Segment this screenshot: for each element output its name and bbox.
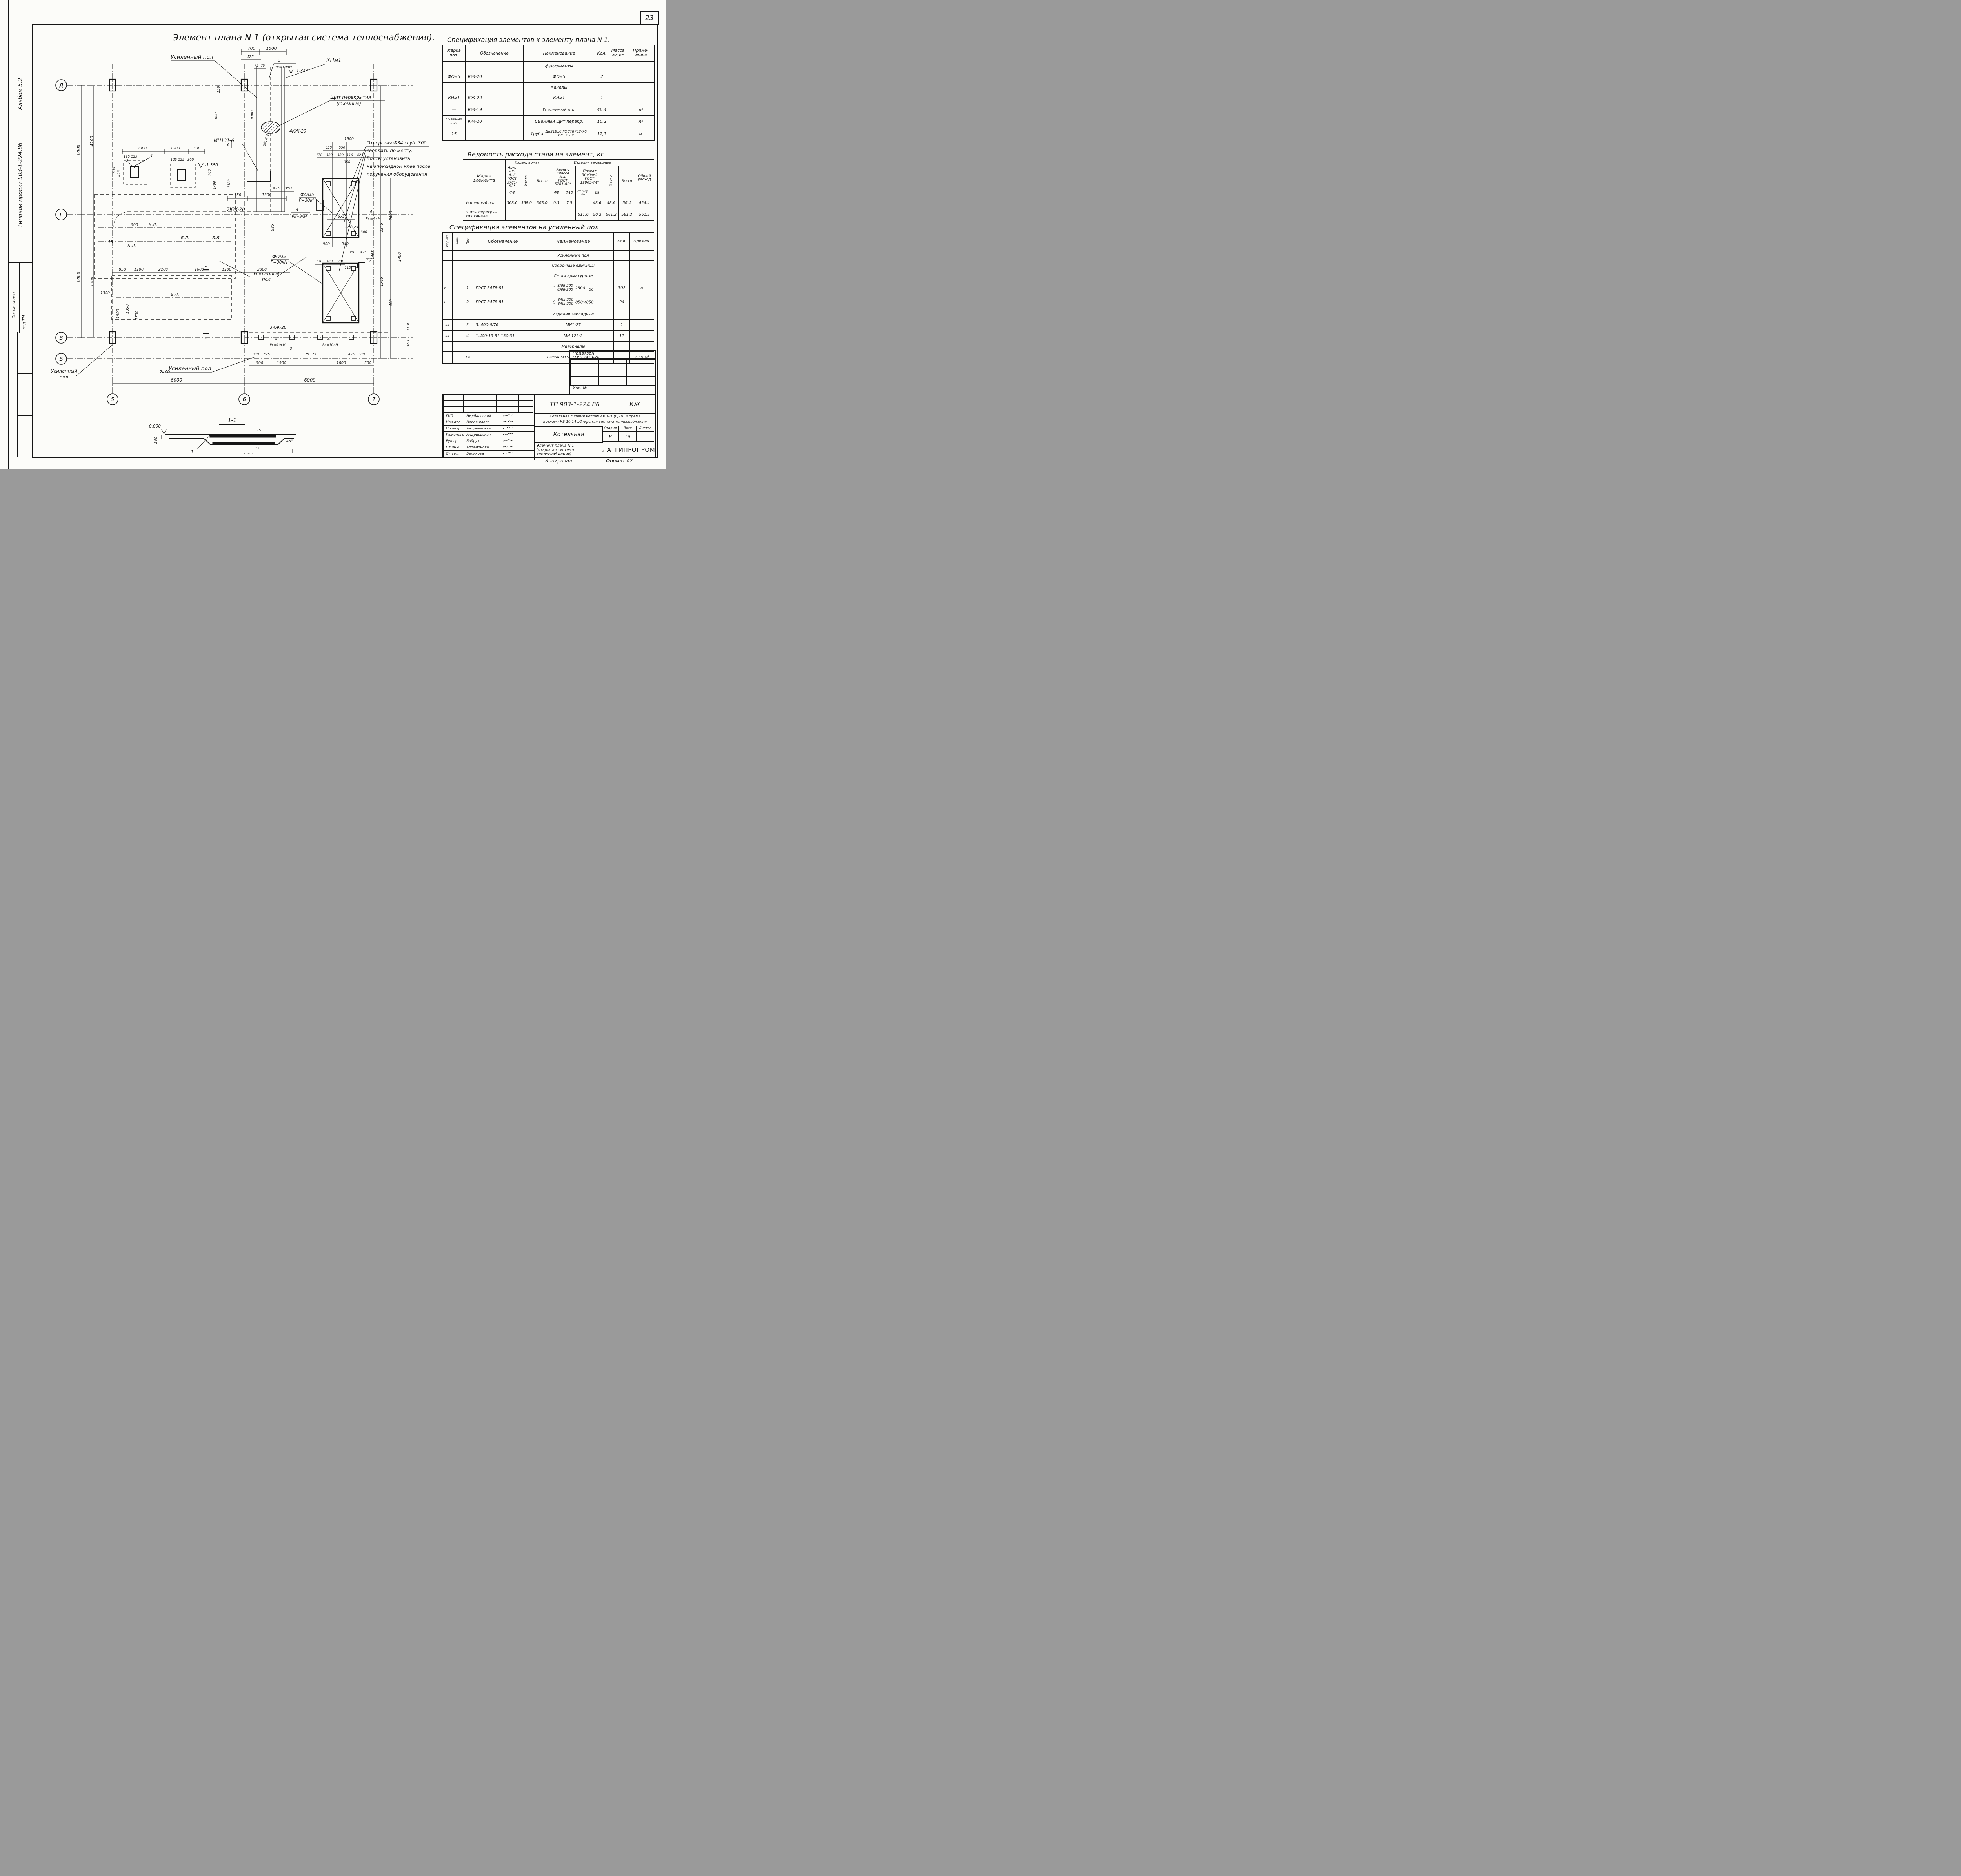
- dim: 1700: [90, 277, 95, 286]
- axis-label-b: Б: [59, 356, 63, 362]
- dim: 6000: [76, 271, 81, 282]
- section-name: Сборочные единицы: [533, 261, 614, 271]
- dim: 500: [131, 223, 138, 227]
- dim: 1465: [371, 250, 375, 260]
- col-header: Арм. кл. А-III ГОСТ 5781-82*: [505, 166, 519, 189]
- attachment-box: Привязан Инв. №: [569, 350, 656, 395]
- organization-cell: ЛАТГИПРОПРОМ: [602, 442, 656, 458]
- table-row: Марка поз. Обозначение Наименование Кол.…: [443, 45, 655, 62]
- pos-number: 4: [275, 337, 277, 342]
- table-row: Съемный щитКЖ-20Съемный щит перекр.10,2м…: [443, 116, 655, 127]
- sheet-value: 19: [619, 431, 636, 442]
- pos-number: 4: [150, 154, 153, 158]
- dim: 380: [326, 153, 333, 157]
- dim: 700: [247, 46, 255, 51]
- table-row: Б.Ч. 2 ГОСТ 8478-81 С 8АIII-2008АIII-200…: [443, 295, 654, 309]
- dim: 125: [310, 353, 316, 357]
- label-reinforced-floor-left1: Усиленный: [51, 368, 77, 374]
- table-row: Усиленный пол 368,0368,0 368,00,3 7,5 48…: [463, 197, 654, 209]
- attachment-label: Привязан: [570, 351, 655, 359]
- col-header: Марка поз.: [443, 45, 466, 62]
- dim: 550: [326, 146, 332, 150]
- dim: 1900: [344, 137, 354, 141]
- dim: 1300: [100, 291, 110, 295]
- col-header: Прокат ВСт3кп2 ГОСТ 19903-74*: [576, 166, 604, 189]
- dim: 1100: [406, 322, 411, 331]
- label-load-10kn: Рк=10кН: [322, 343, 338, 347]
- dim: 75: [255, 64, 259, 68]
- dim: 125: [171, 158, 177, 162]
- dim: 585: [271, 224, 275, 231]
- label-reinforced-floor-top: Усиленный пол: [171, 54, 213, 60]
- col-header: Формат: [446, 235, 449, 247]
- dim: 380: [326, 260, 333, 264]
- note-line5: получения оборудования: [367, 171, 427, 177]
- table-row: А4 4 1.400-15 81.130-31 МН 122-2 11: [443, 331, 654, 342]
- col-header: Кол.: [614, 233, 630, 251]
- dim: 300: [253, 353, 259, 357]
- dim: 380: [337, 153, 344, 157]
- pos-number: 4: [327, 337, 330, 342]
- col-header: Общий расход: [635, 160, 654, 197]
- dim: 4200: [90, 136, 95, 146]
- dim: 600: [214, 112, 218, 119]
- signature: [497, 438, 519, 444]
- dim: 300: [154, 437, 158, 444]
- dim: 1700: [135, 311, 139, 320]
- copied-label: Копировал: [545, 458, 572, 464]
- axis-label-7: 7: [372, 397, 376, 403]
- dim: 350: [285, 186, 292, 191]
- section-elevation: 0.000: [149, 424, 161, 429]
- elevation-1380: -1.380: [205, 163, 218, 167]
- signature: [497, 426, 519, 432]
- plan-drawing: Д Г В Б 5 6 7 700 1500 425 75 75 150 600…: [35, 43, 439, 454]
- signature: [497, 413, 519, 419]
- dim: 6000: [76, 144, 81, 155]
- label-t2: Т2: [366, 258, 371, 263]
- dim: 350: [344, 160, 350, 164]
- col-header: δ8: [591, 189, 604, 197]
- dim: 2350: [243, 452, 253, 454]
- dim: 1400: [213, 181, 217, 189]
- table-row: А4 3 З. 400-6/76 МИ1-27 1: [443, 320, 654, 331]
- dim: 15: [257, 429, 261, 433]
- elevation-1344: -1.344: [295, 69, 308, 73]
- col-header: Примеч.: [630, 233, 654, 251]
- dim: 900: [323, 242, 330, 246]
- table-row: Ст.инж.Артамонова: [444, 444, 534, 451]
- sidebar-inventory-box: [17, 332, 33, 457]
- label-load-9kn: Рк=9кН: [366, 217, 380, 221]
- dim: 1300: [262, 193, 271, 197]
- dim: 1350: [126, 304, 130, 314]
- dim: 6000: [171, 377, 182, 383]
- dim: 1200: [171, 146, 180, 151]
- section-mark-1: 1: [205, 338, 207, 342]
- axis-label-5: 5: [111, 397, 115, 403]
- dim: 125: [131, 155, 137, 159]
- sheets-header: Листов: [636, 426, 654, 431]
- dim: 500: [364, 361, 371, 365]
- dim: 125: [178, 158, 184, 162]
- building-cell: Котельная: [534, 426, 603, 443]
- table-row: 15 Труба Дн219x6 ГОСТ8732-70ВСт3сп2 12,1…: [443, 127, 655, 141]
- table-row: Формат Зона Поз. Обозначение Наименовани…: [443, 233, 654, 251]
- table-row: ГИПНидбальский: [444, 413, 534, 419]
- dim: 425: [264, 353, 270, 357]
- section-name: фундаменты: [524, 62, 595, 71]
- dim: 125: [303, 353, 309, 357]
- col-header: Ф8: [550, 189, 563, 197]
- table-row: фундаменты: [443, 62, 655, 71]
- dim: 1900: [116, 309, 120, 318]
- dim: 425: [273, 186, 280, 191]
- dim: 380: [337, 260, 343, 264]
- dim: 150: [216, 86, 221, 93]
- dim: 300: [358, 353, 365, 357]
- signature: [497, 419, 519, 426]
- col-header: Ф8: [505, 189, 519, 197]
- section-name: Усиленный пол: [533, 251, 614, 261]
- table-row: Марка элемента Издел. армат. Изделия зак…: [463, 160, 654, 166]
- dim: 300: [112, 167, 116, 173]
- label-reinforced-floor-mid1: Усиленный: [253, 271, 280, 277]
- axis-label-d: Д: [59, 82, 64, 89]
- axis-label-g: Г: [60, 212, 63, 218]
- table-row: Щиты перекры- тия канала 511,0 50,2561,2…: [463, 209, 654, 220]
- section-title: 1-1: [228, 417, 236, 424]
- drawing-name-cell: Элемент плана N 1 (открытая система тепл…: [534, 442, 606, 460]
- label-load-9kn: Рк=9кН: [292, 215, 307, 219]
- note-line4: на эпоксидном клее после: [367, 164, 430, 169]
- dim: 425: [117, 170, 121, 177]
- dim: 6000: [304, 377, 315, 383]
- spec2-table: Формат Зона Поз. Обозначение Наименовани…: [442, 232, 654, 364]
- spec1-title: Спецификация элементов к элементу плана …: [447, 36, 610, 44]
- col-header: Армат. класса А-III ГОСТ 5781-82*: [550, 166, 576, 189]
- stage-value: Р: [602, 431, 619, 442]
- label-bl: Б.Л.: [212, 236, 221, 240]
- dim: 2345: [380, 223, 384, 232]
- label-6kzh20: 6КЖ-20: [262, 131, 271, 147]
- object-line1: Котельная с тремя котлами КВ-ТС(В)-10 и …: [535, 414, 655, 420]
- col-header: Наименование: [524, 45, 595, 62]
- title-block: ГИПНидбальский Нач.отд.Новожилова Н.конт…: [442, 394, 656, 457]
- col-header: Итого: [609, 175, 613, 186]
- spec1-table: Марка поз. Обозначение Наименование Кол.…: [442, 45, 655, 141]
- sidebar-project: Типовой проект 903-1-224.86: [17, 142, 24, 227]
- col-header: Итого: [524, 175, 528, 186]
- table-row: Н.контр.Андриевская: [444, 426, 534, 432]
- pos-number: 4: [370, 210, 372, 214]
- page-number-box: 23: [640, 11, 659, 25]
- dim: 425: [357, 153, 363, 157]
- label-reinforced-floor-mid2: пол: [262, 277, 271, 282]
- dim: 940: [342, 242, 349, 246]
- axis-label-6: 6: [243, 397, 246, 403]
- table-row: Изделия закладные: [443, 309, 654, 320]
- dim: 300: [193, 146, 200, 151]
- section-name: Каналы: [524, 83, 595, 92]
- label-bl: Б.Л.: [149, 222, 157, 227]
- dim: 2200: [158, 267, 168, 272]
- dim: 1600: [195, 267, 204, 272]
- dim: 300: [361, 230, 367, 234]
- drawing-name-line2: (открытая система теплоснабжения): [537, 448, 604, 457]
- label-reinforced-floor-bottom: Усиленный пол: [169, 366, 211, 372]
- label-fom5-load: Р=30кН: [299, 198, 316, 203]
- doc-number-cell: ТП 903-1-224.86 КЖ: [534, 395, 656, 414]
- note-line2: сверлить по месту.: [367, 148, 413, 153]
- revision-grid: [443, 395, 534, 413]
- label-mn131: МН131-6: [214, 138, 234, 143]
- dim: 350: [349, 251, 355, 255]
- label-7kzh20: 7КЖ-20: [227, 207, 245, 212]
- label-bl: Б.Л.: [127, 244, 136, 248]
- label-load-10kn: Рк=10кН: [270, 343, 286, 347]
- dim: 170: [316, 153, 322, 157]
- label-slope: 0.002: [251, 110, 255, 119]
- table-row: Каналы: [443, 83, 655, 92]
- col-header: Марка элемента: [463, 160, 506, 197]
- group-header: Изделия закладные: [550, 160, 635, 166]
- sidebar-agreed: Согласовано: [12, 292, 16, 318]
- col-header: Приме- чание: [627, 45, 655, 62]
- note-line3: Болты установить: [367, 156, 410, 161]
- table-row: Рук.гр.Бобрук: [444, 438, 534, 444]
- col-header: Масса ед,кг: [609, 45, 627, 62]
- sheets-value: [636, 431, 654, 442]
- table-row: Б.Ч. 1 ГОСТ 8478-81 С 8АIII-2008АIII-200…: [443, 281, 654, 295]
- label-knm1: КНм1: [326, 57, 342, 64]
- col-header: Зона: [455, 237, 459, 245]
- section-mark-1: 1: [205, 263, 207, 268]
- label-pipe-15: 15: [108, 240, 113, 244]
- stage-block: Стадия Лист Листов Р 19: [602, 426, 654, 442]
- dim: 500: [256, 361, 263, 365]
- pos-number: 3: [278, 58, 280, 63]
- dim: 1765: [380, 277, 384, 286]
- stage-header: Стадия: [602, 426, 619, 431]
- table-row: Сетки арматурные: [443, 271, 654, 281]
- plan-heading: Элемент плана N 1 (открытая система тепл…: [169, 33, 439, 44]
- signature-table: ГИПНидбальский Нач.отд.Новожилова Н.конт…: [443, 413, 534, 457]
- dim: 360: [406, 340, 411, 347]
- dim: 110: [345, 266, 351, 270]
- label-reinforced-floor-left2: пол: [60, 374, 69, 380]
- dim: 675: [338, 215, 345, 219]
- dim: 550: [339, 146, 345, 150]
- table-row: Гл.констр.Андриевская: [444, 432, 534, 438]
- dim: 2600: [389, 211, 393, 220]
- col-header: Обозначение: [473, 233, 533, 251]
- label-fom5-load: Р=30кН: [271, 260, 287, 265]
- steel-table: Марка элемента Издел. армат. Изделия зак…: [463, 159, 654, 221]
- drawing-name-line1: Элемент плана N 1: [537, 444, 604, 448]
- label-shield-line1: Щит перекрытия: [330, 95, 371, 100]
- section-name: Сетки арматурные: [533, 271, 614, 281]
- dim: 1800: [337, 361, 346, 365]
- dim: 1100: [222, 267, 231, 272]
- label-load-10kn: Рк=10кН: [275, 65, 292, 69]
- dim: 110: [347, 153, 353, 157]
- dim: 170: [316, 260, 322, 264]
- label-4kzh20: 4КЖ-20: [289, 129, 306, 134]
- table-row: Нач.отд.Новожилова: [444, 419, 534, 426]
- label-bl: Б.Л.: [181, 236, 189, 240]
- signature: [497, 451, 519, 457]
- pos-number: 3: [290, 347, 292, 351]
- dim: 1100: [134, 267, 144, 272]
- dim: 850: [119, 267, 126, 272]
- signature: [497, 444, 519, 451]
- object-line2: котлами КЕ-10-14с.Открытая система тепло…: [535, 420, 655, 425]
- sidebar-dept: отд ТМ: [22, 315, 26, 329]
- axis-label-v: В: [59, 335, 63, 341]
- drawing-sheet: 23 Альбом 5.2 Типовой проект 903-1-224.8…: [0, 0, 666, 469]
- dim: 125: [345, 226, 351, 229]
- col-header: Обозначение: [466, 45, 524, 62]
- dim: 300: [187, 158, 194, 162]
- col-header: Кол.: [595, 45, 609, 62]
- col-header: Поз.: [466, 238, 469, 244]
- dim: 750: [234, 193, 241, 197]
- dim: 15: [255, 447, 260, 451]
- table-row: ФОм5КЖ-20ФОм52: [443, 71, 655, 83]
- label-fom5: ФОм5: [272, 254, 286, 259]
- pos-number: 3: [126, 158, 128, 163]
- label-shield-line2: (съемные): [337, 101, 361, 106]
- col-header: Наименование: [533, 233, 614, 251]
- col-header: Всего: [619, 166, 635, 197]
- sheet-left-edge: [8, 0, 9, 469]
- note-line1: Отверстия Ф34 глуб. 300: [367, 140, 427, 146]
- dim: 425: [360, 251, 366, 255]
- dim: 400: [389, 299, 393, 306]
- dim: 1900: [277, 361, 286, 365]
- signature: [497, 432, 519, 438]
- doc-number: ТП 903-1-224.86: [550, 401, 600, 408]
- dim: 2000: [137, 146, 147, 151]
- steel-title: Ведомость расхода стали на элемент, кг: [468, 151, 604, 158]
- table-row: —КЖ-19Усиленный пол46,4м²: [443, 104, 655, 116]
- dim: 75: [261, 64, 265, 68]
- col-header: ст.риф. δ6: [576, 189, 591, 197]
- group-header: Издел. армат.: [505, 160, 550, 166]
- label-fom5: ФОм5: [300, 192, 314, 197]
- label-bl: Б.Л.: [171, 292, 179, 297]
- pos-number: 1: [191, 450, 194, 454]
- doc-code: КЖ: [629, 401, 640, 408]
- pos-number: 6: [227, 143, 229, 147]
- dim: 700: [208, 169, 212, 176]
- table-row: Сборочные единицы: [443, 261, 654, 271]
- table-row: Ст.тех.Белякова: [444, 451, 534, 457]
- col-header: Ф10: [563, 189, 576, 197]
- dim: 1400: [398, 252, 402, 262]
- section-name: Изделия закладные: [533, 309, 614, 320]
- spec2-title: Спецификация элементов на усиленный пол.: [449, 224, 601, 231]
- dim: 1500: [266, 46, 277, 51]
- dim: 125: [352, 226, 358, 229]
- angle-label: 45°: [286, 439, 293, 444]
- sidebar-album: Альбом 5.2: [17, 78, 24, 110]
- label-3kzh20: 3КЖ-20: [270, 325, 287, 330]
- inventory-label: Инв. №: [570, 385, 655, 394]
- table-row: КНм1КЖ-20КНм11: [443, 92, 655, 104]
- col-header: Всего: [534, 166, 550, 197]
- format-label: Формат А2: [606, 458, 633, 464]
- table-row: Усиленный пол: [443, 251, 654, 261]
- pos-number: 4: [296, 207, 298, 212]
- dim: 425: [247, 55, 254, 59]
- dim: 1180: [227, 179, 231, 188]
- page-number: 23: [645, 14, 654, 22]
- sheet-header: Лист: [619, 426, 636, 431]
- dim: 425: [348, 353, 355, 357]
